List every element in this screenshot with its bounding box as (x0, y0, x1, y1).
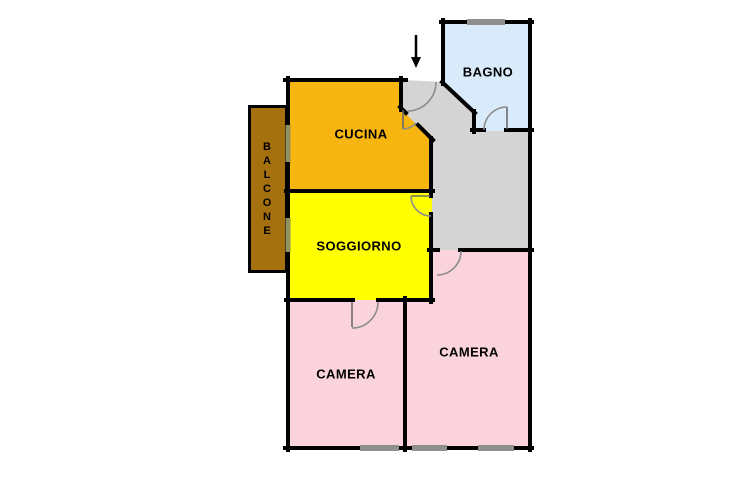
label-bagno: BAGNO (463, 65, 513, 80)
label-camera-right: CAMERA (439, 345, 498, 360)
entrance-arrow-icon (411, 35, 421, 68)
label-balcone: BALCONE (261, 141, 273, 239)
floor-plan: CUCINA SOGGIORNO BAGNO CAMERA CAMERA BAL… (0, 0, 751, 500)
label-cucina: CUCINA (335, 127, 388, 142)
label-camera-left: CAMERA (316, 367, 375, 382)
label-soggiorno: SOGGIORNO (316, 239, 401, 254)
